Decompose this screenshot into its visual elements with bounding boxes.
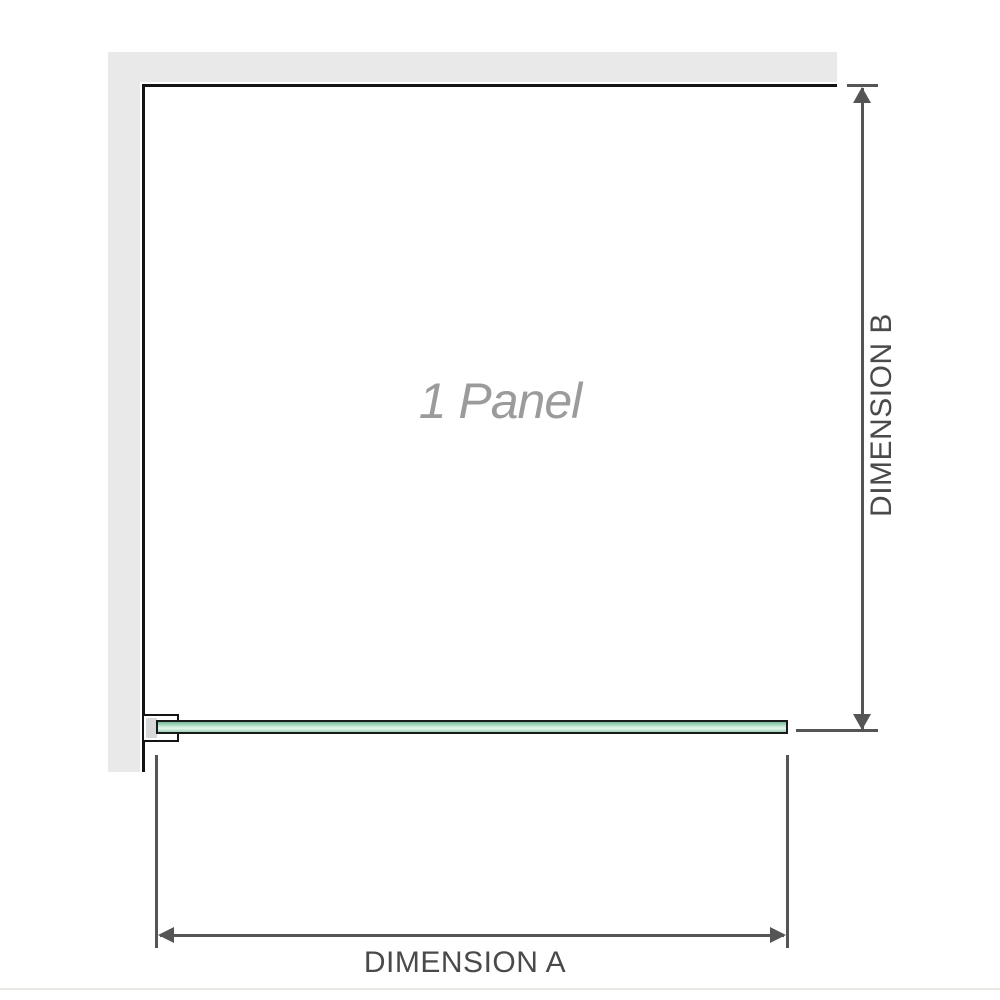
bottom-rule xyxy=(0,988,1000,990)
dimension-b-label: DIMENSION B xyxy=(861,215,903,615)
glass-panel xyxy=(156,720,788,734)
panel-outline-left xyxy=(142,84,145,772)
dimension-a-extension-left xyxy=(155,755,158,948)
arrow-down-icon xyxy=(853,714,871,730)
wall-left xyxy=(108,52,140,772)
wall-top xyxy=(108,52,837,82)
arrow-right-icon xyxy=(770,927,786,943)
arrow-left-icon xyxy=(158,927,174,943)
panel-count-label: 1 Panel xyxy=(300,372,700,430)
dimension-a-label: DIMENSION A xyxy=(265,946,665,980)
dimension-a-extension-right xyxy=(786,755,789,948)
shower-panel-diagram: 1 Panel DIMENSION B DIMENSION A xyxy=(0,0,1000,1000)
panel-outline-top xyxy=(142,84,837,87)
dimension-a-line xyxy=(160,934,784,937)
arrow-up-icon xyxy=(853,87,871,103)
